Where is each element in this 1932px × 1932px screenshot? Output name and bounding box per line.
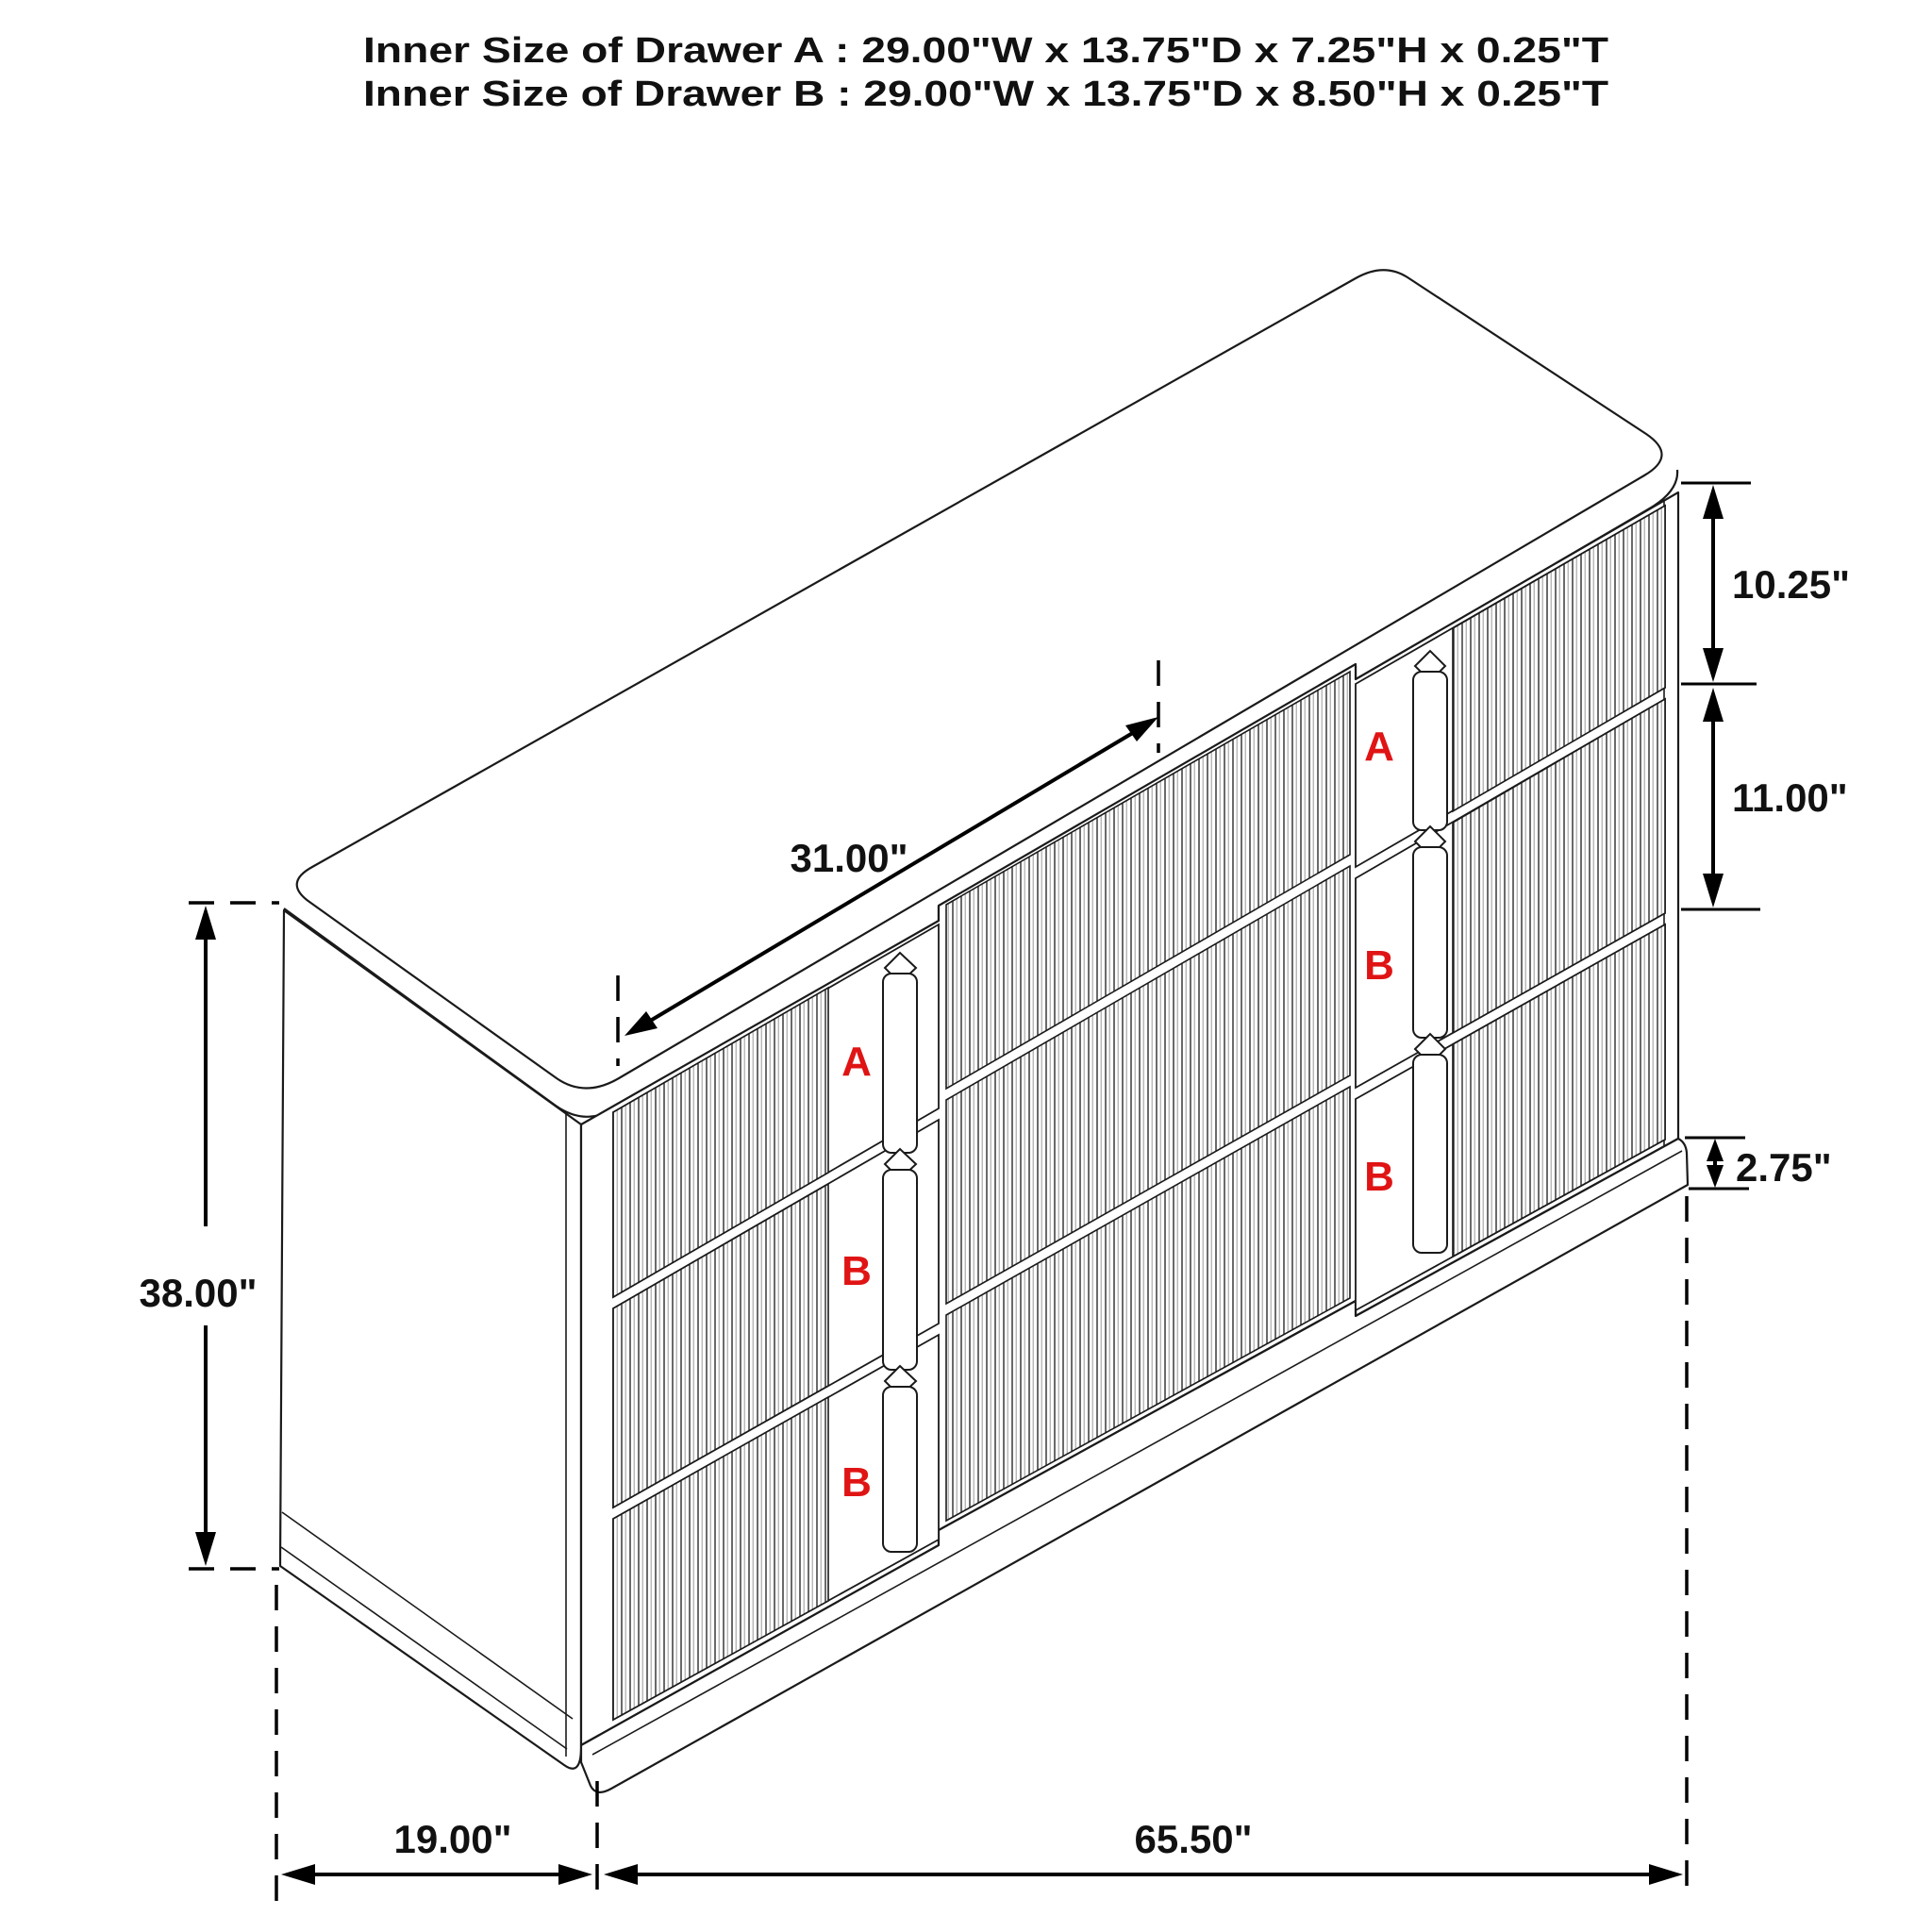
arrowhead-left — [604, 1864, 638, 1885]
arrowhead-left — [281, 1864, 315, 1885]
middle-top-width-label: 31.00" — [790, 836, 908, 880]
right-drawer-handle — [1413, 651, 1447, 1253]
right-drawer-b1-label: B — [1364, 942, 1394, 989]
base-height-label: 2.75" — [1736, 1145, 1832, 1190]
arrowhead-up — [1707, 1139, 1724, 1161]
left-drawer-b2-label: B — [841, 1459, 872, 1506]
left-drawer-handle — [883, 953, 917, 1552]
arrowhead-down — [1703, 874, 1724, 908]
middle-drawer-height-label: 11.00" — [1732, 775, 1848, 820]
dim-base-height: 2.75" — [1685, 1138, 1832, 1190]
right-drawer-a-label: A — [1364, 724, 1394, 770]
handle-bar — [883, 1387, 917, 1552]
handle-bar — [1413, 1055, 1447, 1253]
title-line-drawer-b: Inner Size of Drawer B : 29.00"W x 13.75… — [363, 75, 1608, 114]
arrowhead-down — [1707, 1165, 1724, 1188]
overall-height-label: 38.00" — [139, 1271, 257, 1315]
dim-middle-drawer-height: 11.00" — [1681, 688, 1848, 909]
arrowhead-down — [195, 1532, 216, 1566]
dim-top-drawer-height: 10.25" — [1681, 483, 1850, 684]
depth-label: 19.00" — [393, 1817, 511, 1861]
left-drawer-b1-label: B — [841, 1248, 872, 1294]
handle-bar — [883, 974, 917, 1153]
arrowhead-up — [195, 906, 216, 940]
overall-width-label: 65.50" — [1134, 1817, 1252, 1861]
arrowhead-down — [1703, 648, 1724, 682]
arrowhead-up — [1703, 688, 1724, 722]
furniture-dimension-diagram: Inner Size of Drawer A : 29.00"W x 13.75… — [0, 0, 1932, 1932]
right-drawer-b2-label: B — [1364, 1154, 1394, 1200]
dim-overall-height: 38.00" — [139, 903, 279, 1569]
arrowhead-up — [1703, 485, 1724, 519]
handle-bar — [1413, 847, 1447, 1038]
diagram-svg: Inner Size of Drawer A : 29.00"W x 13.75… — [0, 0, 1932, 1932]
title-block: Inner Size of Drawer A : 29.00"W x 13.75… — [363, 31, 1608, 114]
arrowhead-right — [558, 1864, 592, 1885]
arrowhead-right — [1649, 1864, 1683, 1885]
handle-bar — [883, 1170, 917, 1370]
dresser-drawing: A B B A B B — [280, 270, 1688, 1792]
top-drawer-height-label: 10.25" — [1732, 562, 1850, 607]
title-line-drawer-a: Inner Size of Drawer A : 29.00"W x 13.75… — [363, 31, 1608, 71]
left-drawer-a-label: A — [841, 1039, 872, 1085]
handle-bar — [1413, 672, 1447, 830]
